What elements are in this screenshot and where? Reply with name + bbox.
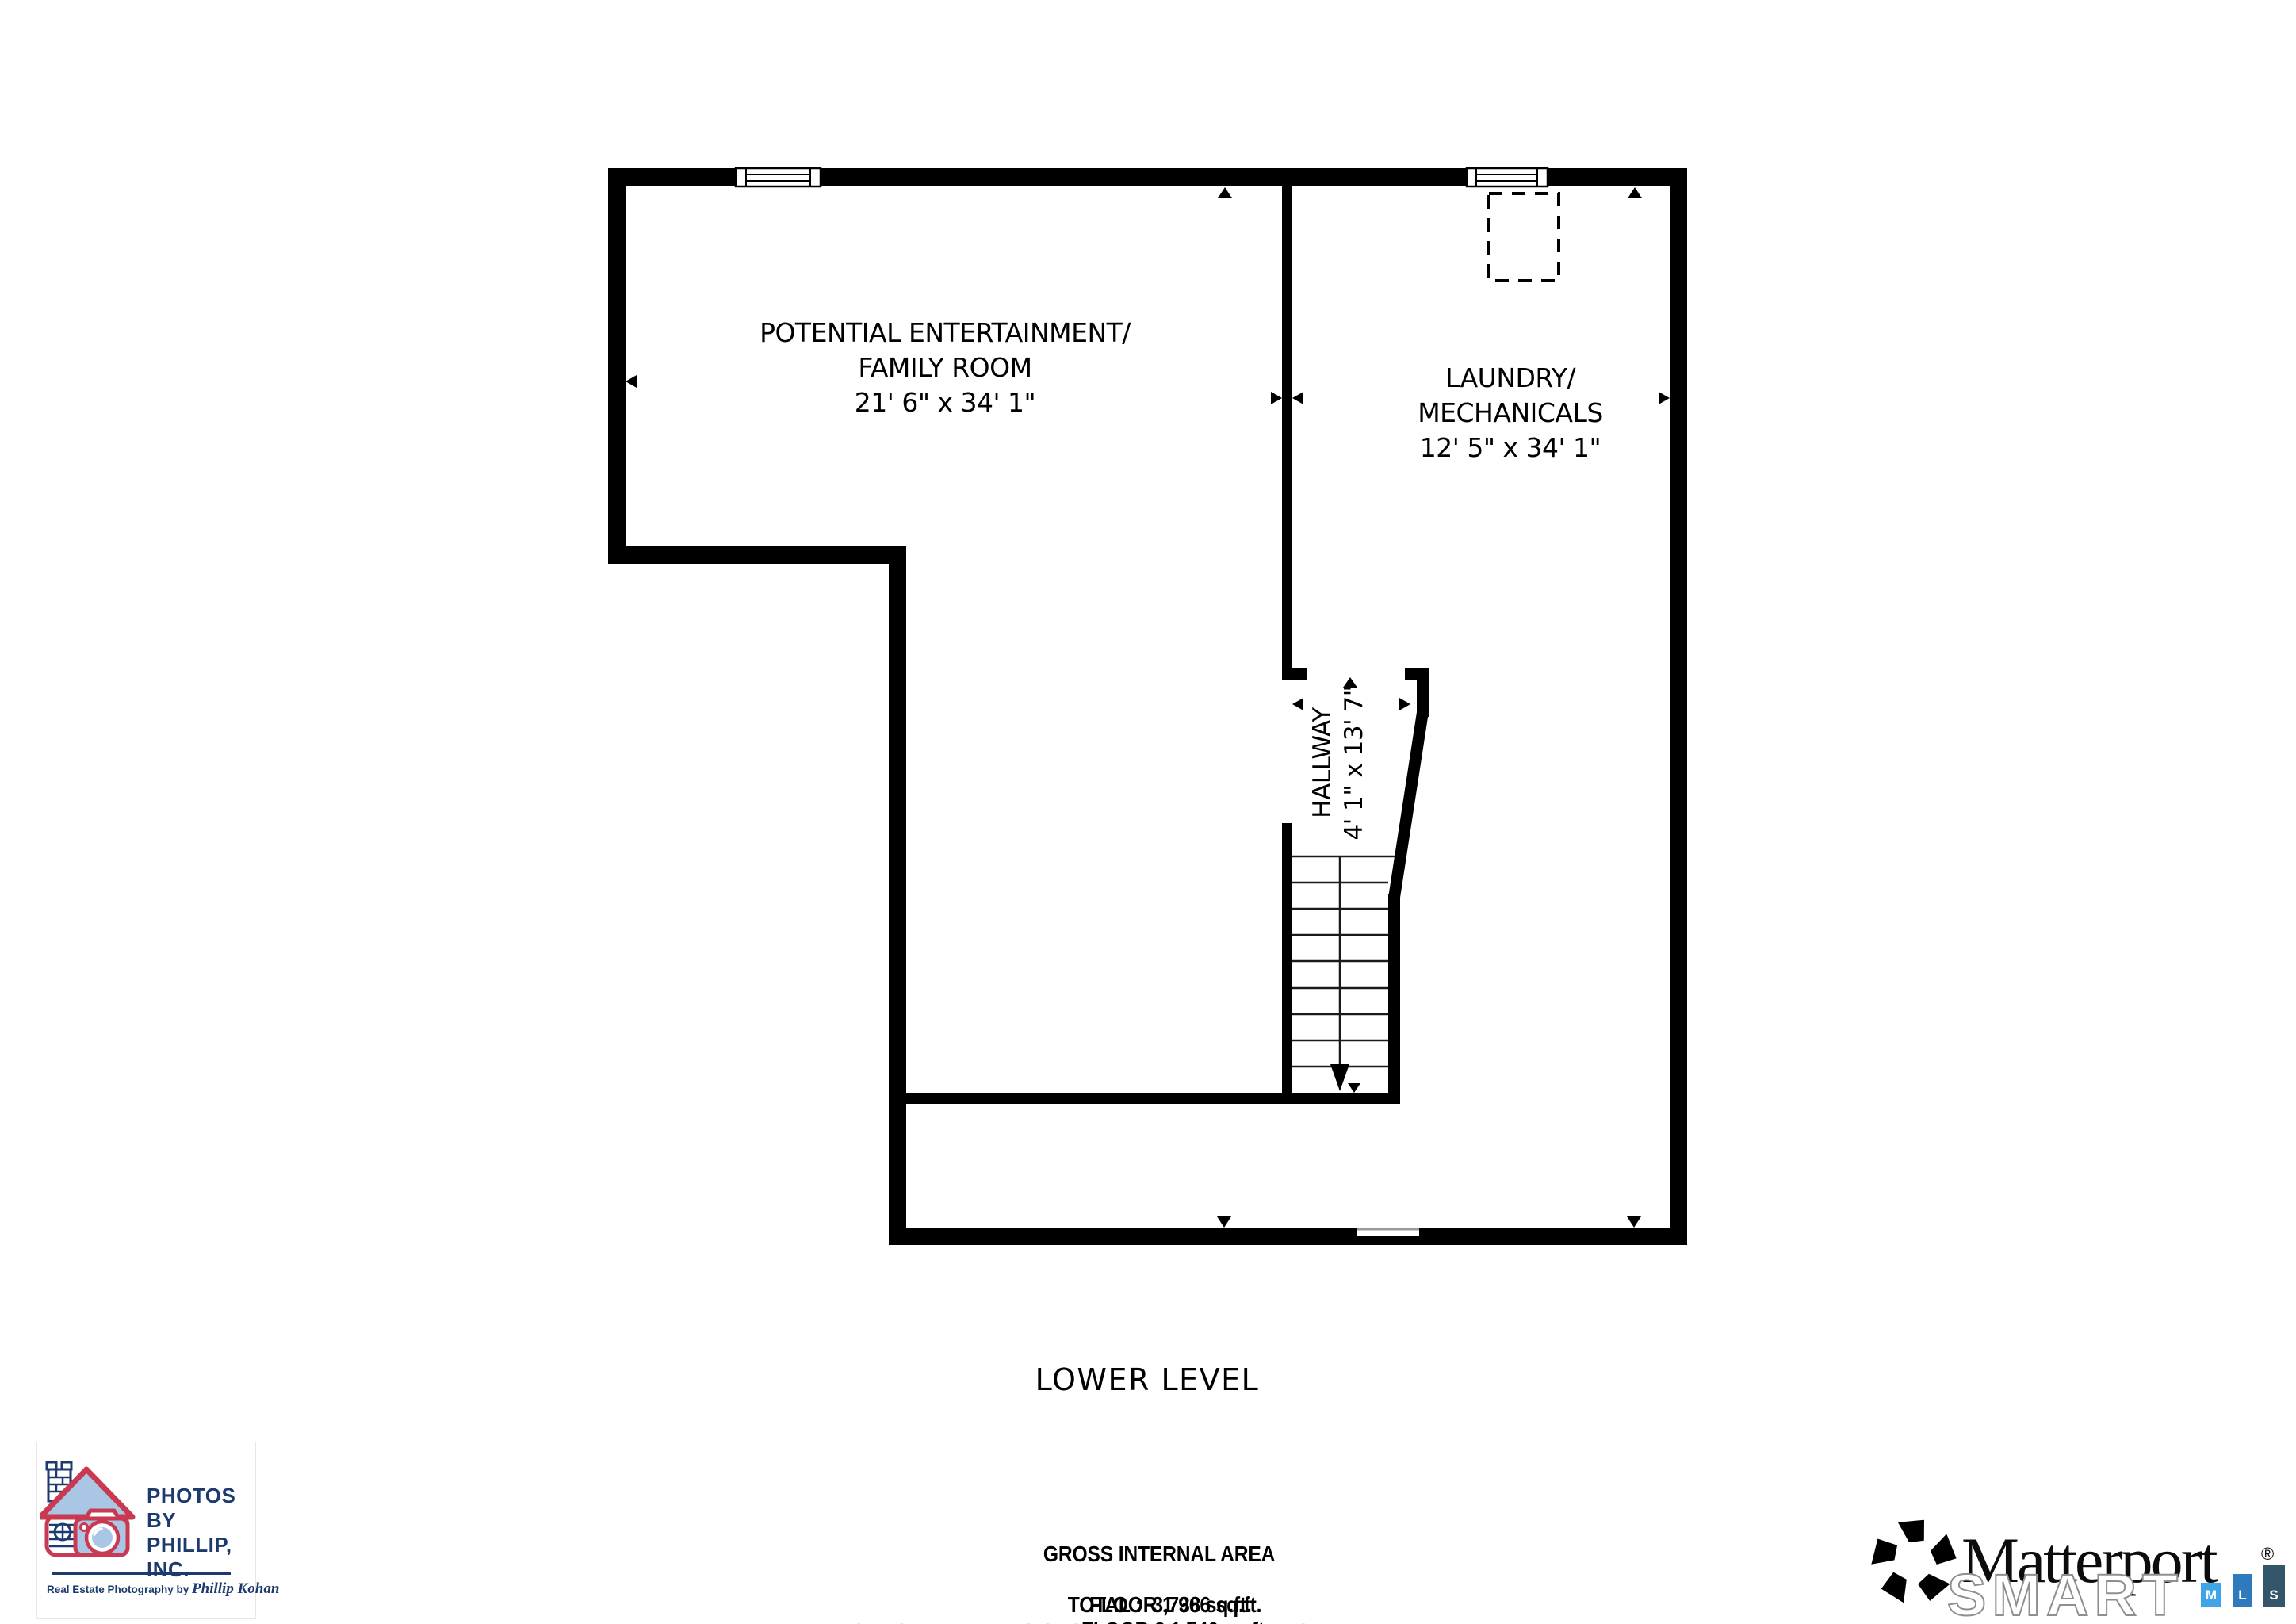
matterport-pinwheel-icon xyxy=(1869,1517,1958,1606)
family-room-label: POTENTIAL ENTERTAINMENT/ FAMILY ROOM 21'… xyxy=(628,316,1262,420)
hallway-label: HALLWAY 4' 1" x 13' 7" xyxy=(1307,644,1373,882)
logo-divider xyxy=(52,1572,231,1575)
stair-direction-arrow xyxy=(1330,1064,1349,1091)
photographer-logo: PHOTOS BY PHILLIP, INC. Real Estate Phot… xyxy=(36,1442,256,1619)
room-name-line: FAMILY ROOM xyxy=(628,350,1262,385)
mls-s-badge: S xyxy=(2263,1565,2285,1607)
mls-m-badge: M xyxy=(2201,1583,2221,1607)
window-icon xyxy=(736,168,821,186)
appliance-dashed-box xyxy=(1489,193,1559,281)
room-dimensions: 4' 1" x 13' 7" xyxy=(1338,644,1370,882)
room-name-line: POTENTIAL ENTERTAINMENT/ xyxy=(628,316,1262,350)
laundry-room-label: LAUNDRY/ MECHANICALS 12' 5" x 34' 1" xyxy=(1312,361,1709,465)
photographer-name: PHOTOS BY PHILLIP, INC. xyxy=(147,1484,255,1582)
floor-level-title: LOWER LEVEL xyxy=(909,1362,1385,1397)
room-name-line: MECHANICALS xyxy=(1312,396,1709,431)
room-dimensions: 12' 5" x 34' 1" xyxy=(1312,431,1709,465)
disclaimer-text: SIZES AND DIMENSIONS ARE APPROXIMATE, AC… xyxy=(751,1594,1544,1624)
smartmls-outline-text: SMART xyxy=(1947,1561,2183,1624)
room-name-line: LAUNDRY/ xyxy=(1312,361,1709,396)
house-camera-icon xyxy=(40,1458,136,1565)
matterport-watermark: Matterport ® SMART M L S xyxy=(1865,1509,2293,1622)
room-name-line: HALLWAY xyxy=(1307,644,1338,882)
staircase xyxy=(1292,856,1395,1067)
registered-mark: ® xyxy=(2261,1544,2274,1565)
room-dimensions: 21' 6" x 34' 1" xyxy=(628,385,1262,420)
floorplan-page: POTENTIAL ENTERTAINMENT/ FAMILY ROOM 21'… xyxy=(0,0,2296,1624)
window-icon xyxy=(1467,168,1548,186)
photographer-tagline: Real Estate Photography by Phillip Kohan xyxy=(47,1580,250,1598)
mls-l-badge: L xyxy=(2233,1574,2252,1607)
